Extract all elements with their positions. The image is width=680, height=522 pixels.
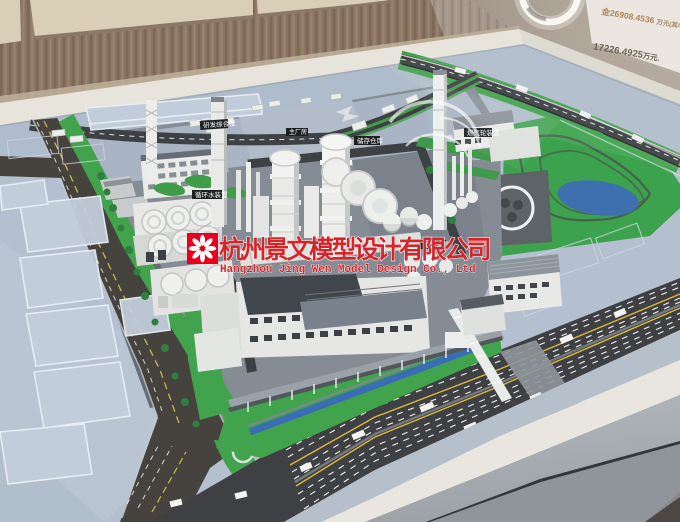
svg-text:循环水装置: 循环水装置: [195, 190, 228, 199]
svg-text:主厂房: 主厂房: [289, 128, 307, 136]
svg-text:杭州景文模型设计有限公司: 杭州景文模型设计有限公司: [219, 235, 490, 264]
svg-text:储存仓库: 储存仓库: [357, 136, 384, 145]
svg-text:Hangzhou Jing Wen Model Design: Hangzhou Jing Wen Model Design Co., Ltd: [220, 264, 476, 276]
